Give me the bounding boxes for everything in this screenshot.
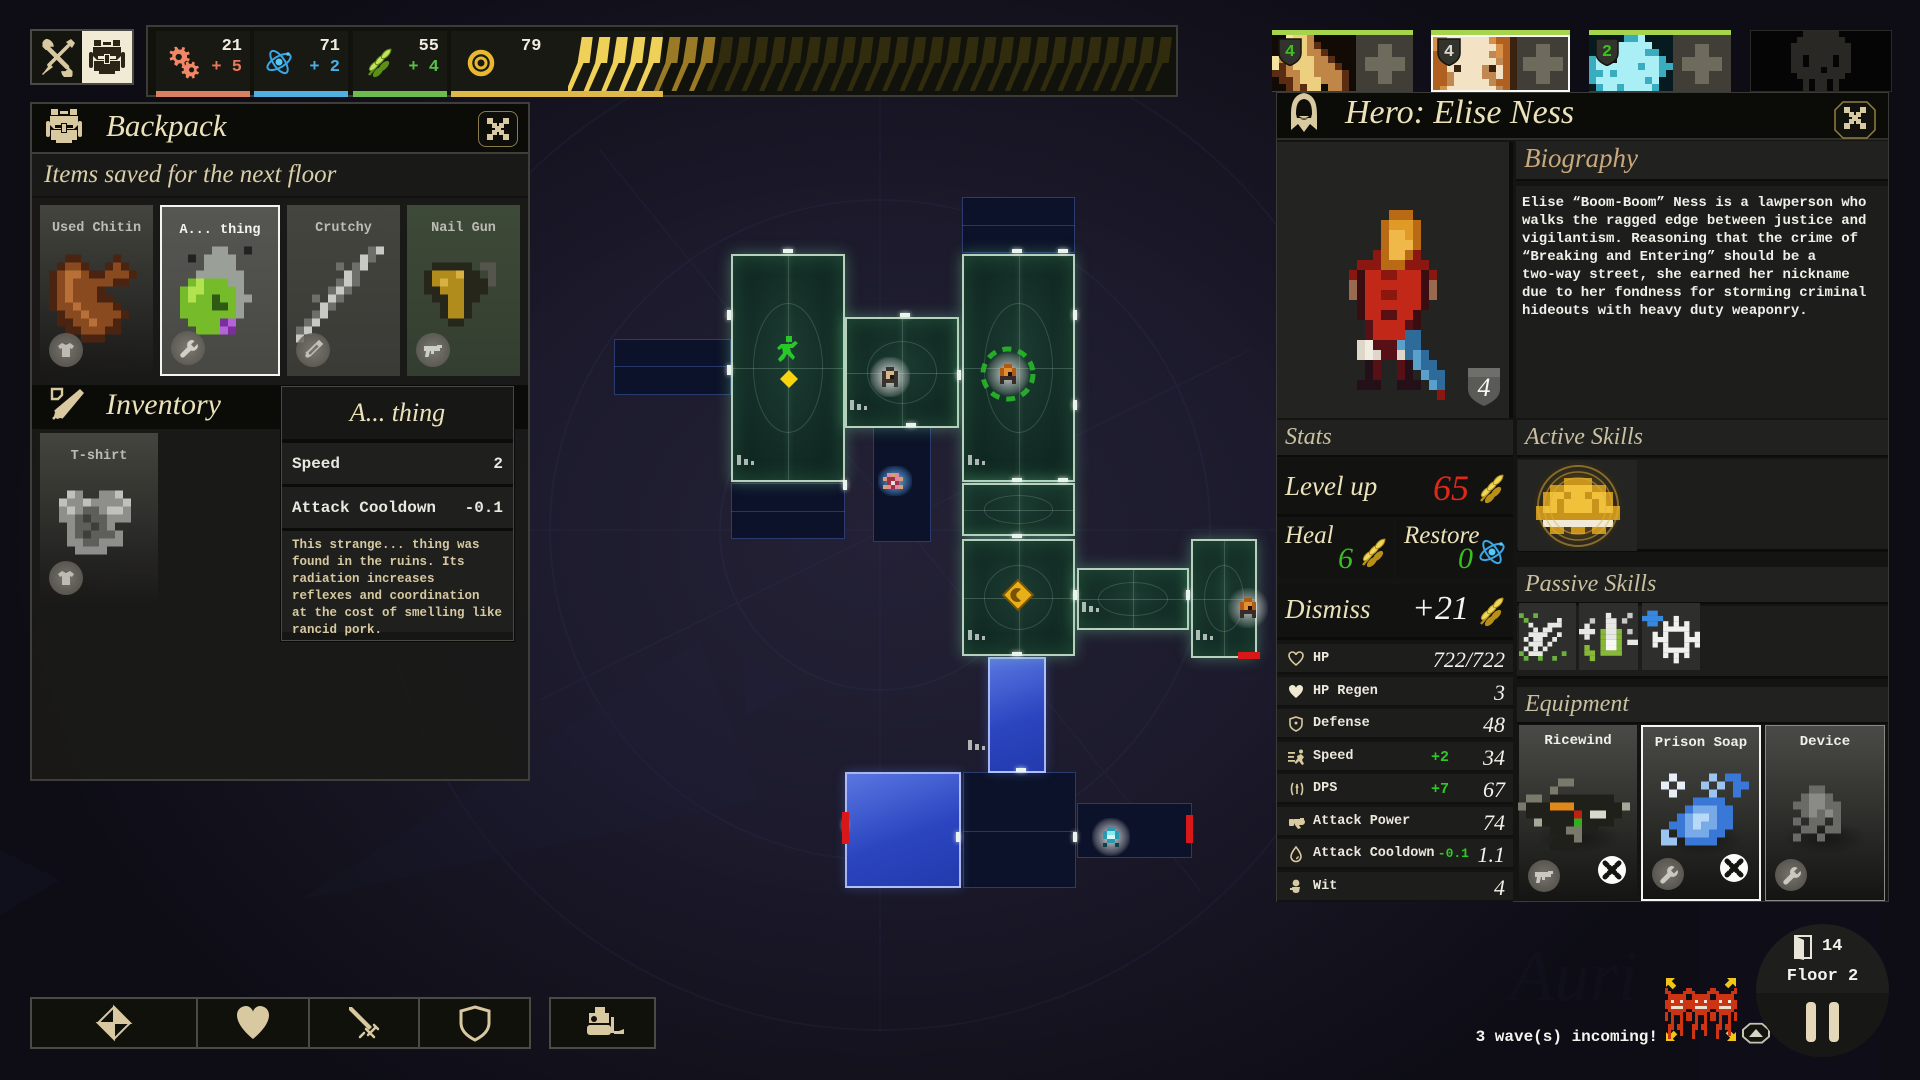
svg-text:2: 2 xyxy=(1602,43,1612,62)
svg-text:4: 4 xyxy=(1444,43,1454,62)
svg-text:4: 4 xyxy=(1285,43,1295,62)
svg-text:4: 4 xyxy=(1478,373,1491,402)
